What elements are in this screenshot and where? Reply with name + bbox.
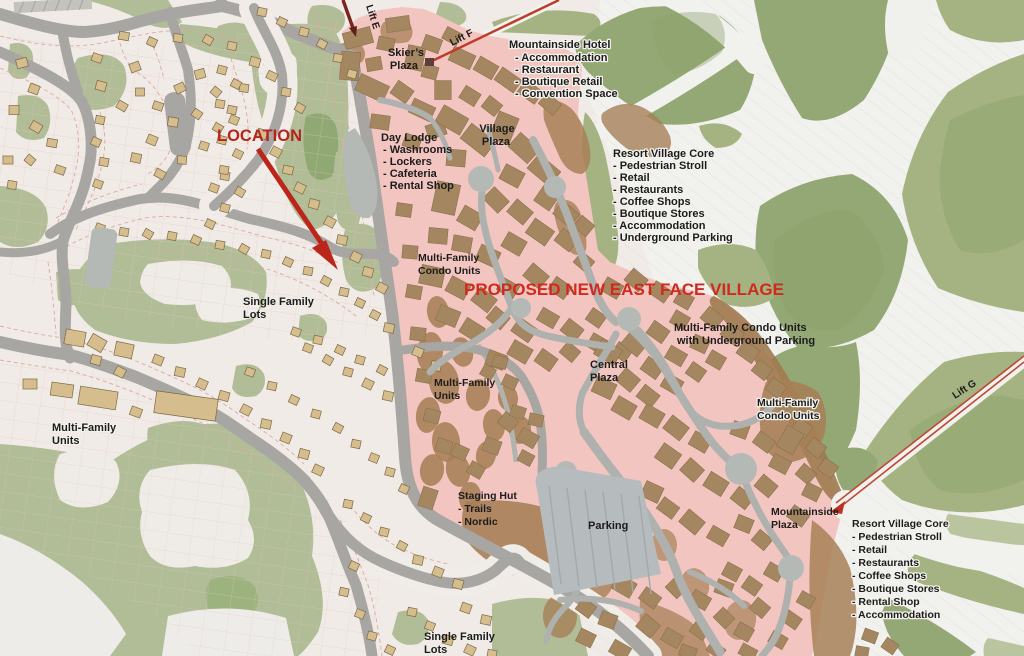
svg-text:- Coffee Shops: - Coffee Shops [613,196,691,208]
svg-text:- Accommodation: - Accommodation [613,220,706,232]
svg-text:Multi-Family: Multi-Family [52,422,117,434]
svg-text:Lots: Lots [243,309,266,321]
svg-text:- Trails: - Trails [458,503,492,515]
svg-text:Plaza: Plaza [482,136,511,148]
svg-text:with Underground Parking: with Underground Parking [676,335,815,347]
svg-text:- Convention Space: - Convention Space [515,88,618,100]
svg-text:- Washrooms: - Washrooms [383,144,452,156]
svg-text:Plaza: Plaza [771,519,798,531]
svg-text:- Restaurant: - Restaurant [515,64,580,76]
svg-text:- Restaurants: - Restaurants [613,184,683,196]
svg-text:LOCATION: LOCATION [217,127,302,145]
svg-text:- Boutique Retail: - Boutique Retail [515,76,602,88]
svg-text:- Lockers: - Lockers [383,156,432,168]
svg-text:- Underground Parking: - Underground Parking [613,232,733,244]
svg-text:Village: Village [479,123,514,135]
svg-text:- Rental Shop: - Rental Shop [383,180,454,192]
svg-text:- Nordic: - Nordic [458,516,498,528]
svg-text:- Pedestrian Stroll: - Pedestrian Stroll [613,160,707,172]
svg-text:Skier’s: Skier’s [388,47,424,59]
svg-text:Multi-Family Condo Units: Multi-Family Condo Units [674,322,807,334]
svg-text:Condo Units: Condo Units [418,265,481,277]
svg-text:Single Family: Single Family [243,296,315,308]
svg-text:Units: Units [434,390,460,402]
svg-text:Resort Village Core: Resort Village Core [852,518,949,530]
svg-text:Day Lodge: Day Lodge [381,132,437,144]
svg-text:- Retail: - Retail [613,172,650,184]
svg-text:Multi-Family: Multi-Family [434,377,495,389]
svg-text:Parking: Parking [588,520,628,532]
svg-text:PROPOSED NEW EAST FACE VILLAGE: PROPOSED NEW EAST FACE VILLAGE [464,280,784,299]
svg-text:- Retail: - Retail [852,544,887,556]
svg-text:Mountainside Hotel: Mountainside Hotel [509,39,610,51]
svg-text:- Boutique Stores: - Boutique Stores [852,583,940,595]
svg-text:Plaza: Plaza [590,372,619,384]
svg-text:- Coffee Shops: - Coffee Shops [852,570,926,582]
svg-text:Mountainside: Mountainside [771,506,839,518]
svg-text:- Rental Shop: - Rental Shop [852,596,920,608]
svg-text:Plaza: Plaza [390,60,419,72]
svg-text:- Accommodation: - Accommodation [515,52,608,64]
svg-text:Units: Units [52,435,80,447]
svg-text:- Accommodation: - Accommodation [852,609,940,621]
svg-text:Condo Units: Condo Units [757,410,820,422]
svg-text:Resort Village Core: Resort Village Core [613,148,714,160]
svg-text:- Restaurants: - Restaurants [852,557,919,569]
svg-text:Multi-Family: Multi-Family [757,397,818,409]
svg-text:Staging Hut: Staging Hut [458,490,517,502]
svg-text:Multi-Family: Multi-Family [418,252,479,264]
svg-text:Single Family: Single Family [424,631,496,643]
svg-text:- Boutique Stores: - Boutique Stores [613,208,705,220]
svg-text:Lots: Lots [424,644,447,656]
svg-text:- Cafeteria: - Cafeteria [383,168,438,180]
svg-text:- Pedestrian Stroll: - Pedestrian Stroll [852,531,942,543]
svg-text:Central: Central [590,359,628,371]
